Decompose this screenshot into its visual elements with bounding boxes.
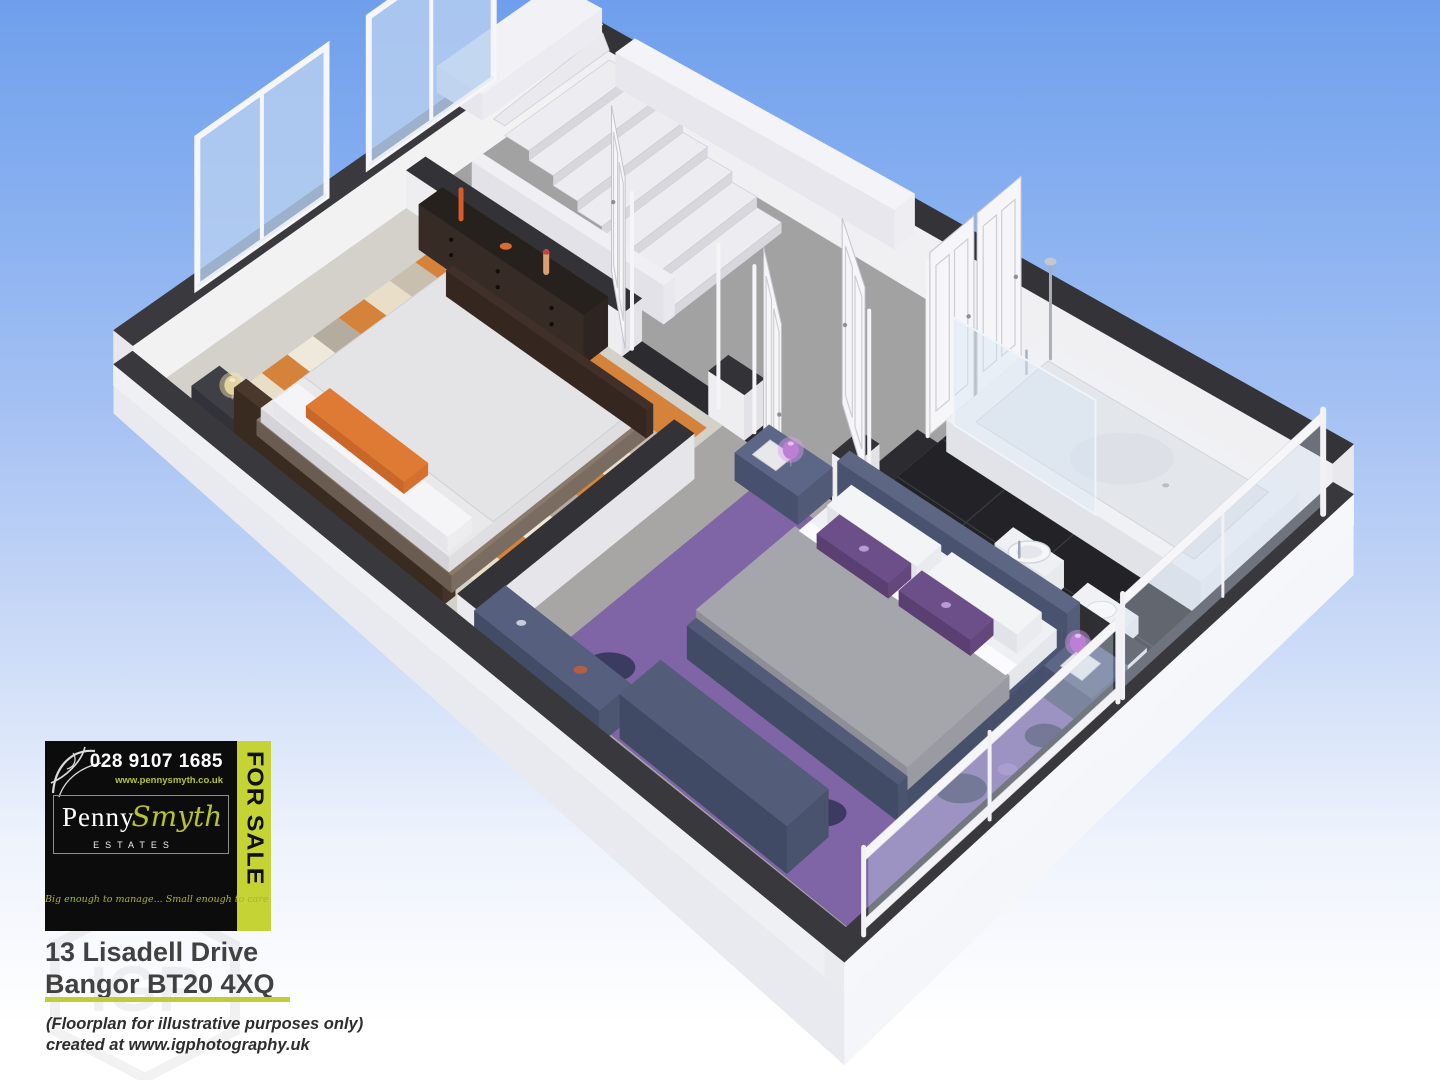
disclaimer-line-1: (Floorplan for illustrative purposes onl… bbox=[46, 1014, 363, 1035]
disclaimer: (Floorplan for illustrative purposes onl… bbox=[46, 1014, 363, 1056]
address-line-2: Bangor BT20 4XQ bbox=[45, 968, 275, 1000]
agent-tagline: Big enough to manage... Small enough to … bbox=[45, 894, 237, 905]
agent-name-box: PennySmyth ESTATES bbox=[53, 795, 229, 854]
agent-name-script: Smyth bbox=[132, 800, 223, 833]
agent-logo-block: 028 9107 1685 www.pennysmyth.co.uk Penny… bbox=[45, 741, 271, 931]
divider-line bbox=[45, 997, 290, 1002]
agent-name-sub: ESTATES bbox=[54, 840, 214, 850]
text-overlay: IGP 028 9107 1685 www.pennysmyth.co.uk P… bbox=[0, 0, 1440, 1080]
disclaimer-line-2: created at www.igphotography.uk bbox=[46, 1035, 363, 1056]
property-address: 13 Lisadell Drive Bangor BT20 4XQ bbox=[45, 936, 275, 1000]
address-line-1: 13 Lisadell Drive bbox=[45, 936, 275, 968]
flourish-icon bbox=[47, 743, 105, 801]
agent-name-primary: Penny bbox=[62, 802, 135, 832]
floorplan-page: IGP 028 9107 1685 www.pennysmyth.co.uk P… bbox=[0, 0, 1440, 1080]
agent-logo: 028 9107 1685 www.pennysmyth.co.uk Penny… bbox=[45, 741, 237, 931]
for-sale-text: FOR SALE bbox=[241, 751, 268, 885]
